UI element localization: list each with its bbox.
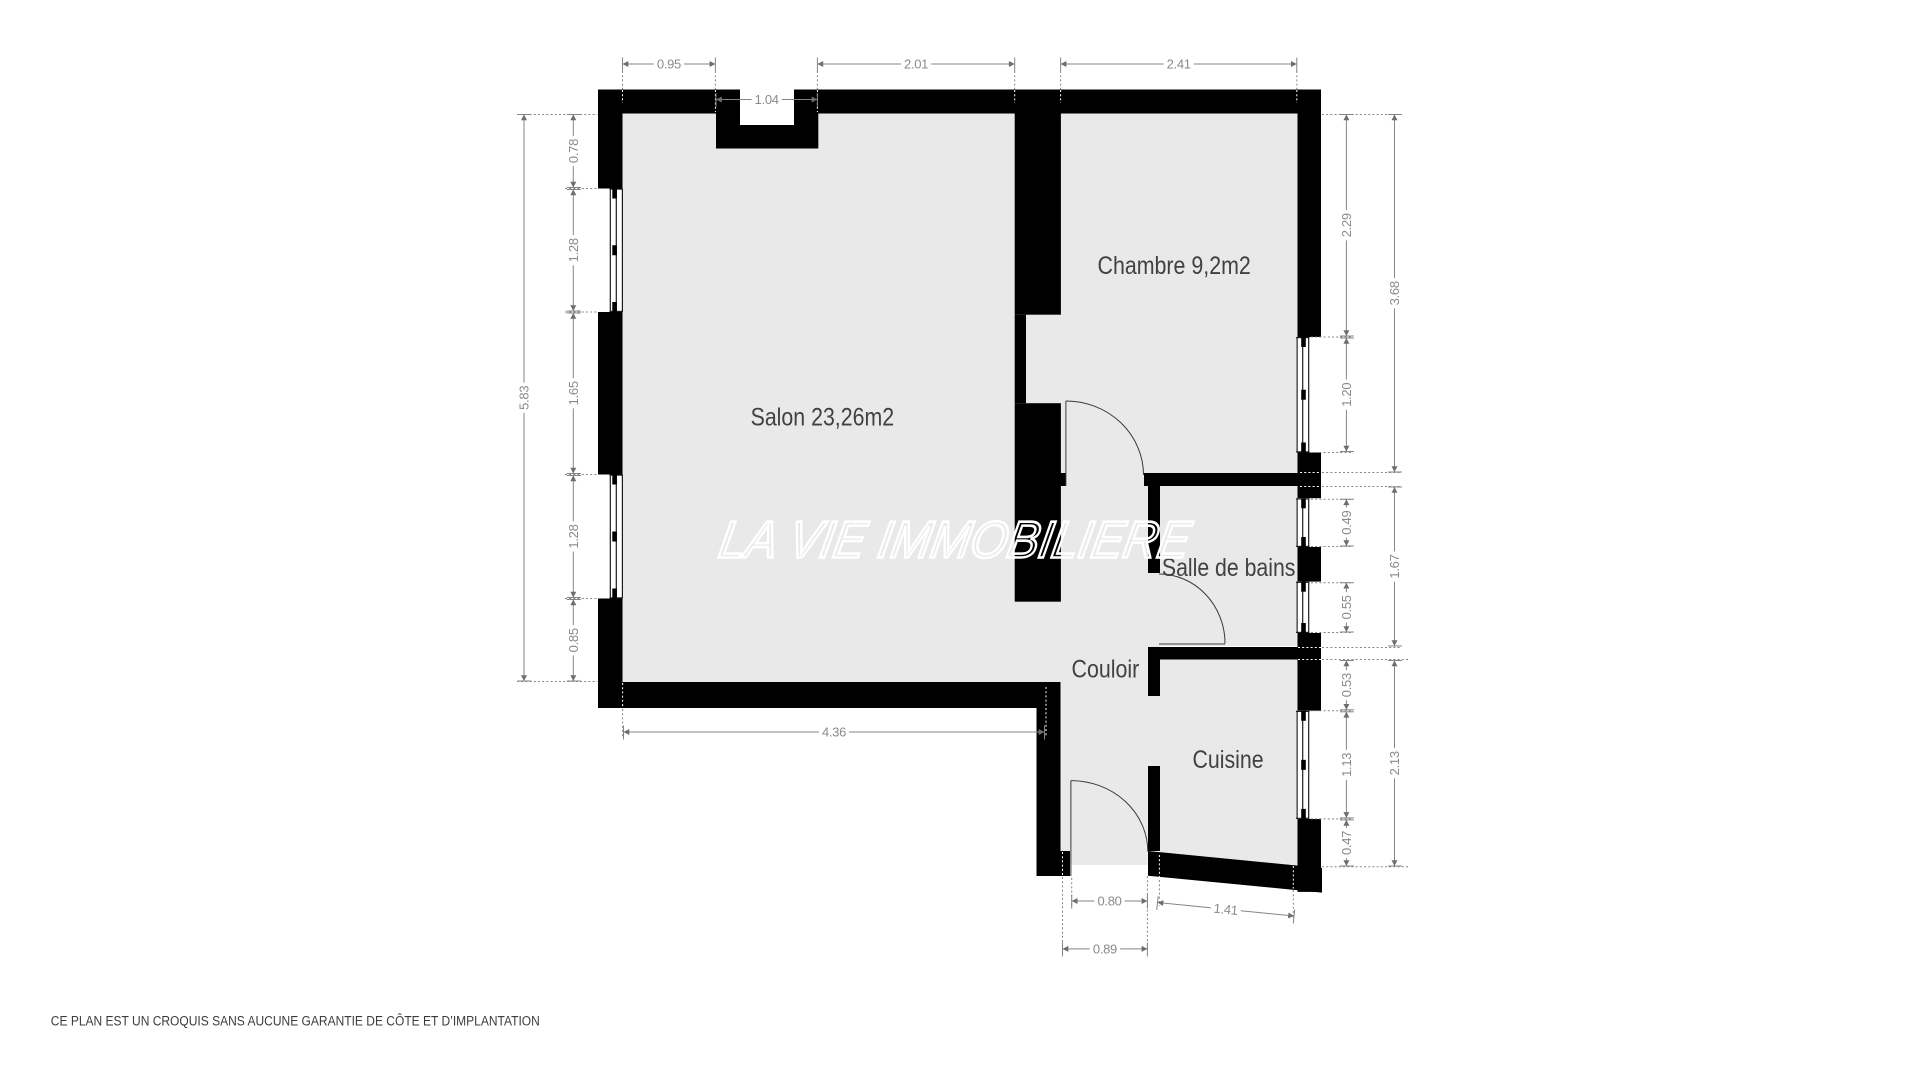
- svg-text:5.83: 5.83: [517, 386, 532, 410]
- svg-text:2.41: 2.41: [1167, 57, 1191, 72]
- svg-text:1.65: 1.65: [566, 381, 581, 405]
- svg-text:LA VIE IMMOBILIERE: LA VIE IMMOBILIERE: [715, 512, 1196, 570]
- svg-text:1.20: 1.20: [1339, 383, 1354, 407]
- svg-text:0.80: 0.80: [1097, 894, 1121, 909]
- svg-text:2.13: 2.13: [1387, 751, 1402, 775]
- svg-text:3.68: 3.68: [1387, 281, 1402, 305]
- svg-text:1.67: 1.67: [1387, 554, 1402, 578]
- svg-text:0.55: 0.55: [1339, 595, 1354, 619]
- svg-text:0.89: 0.89: [1093, 942, 1117, 957]
- svg-text:Couloir: Couloir: [1072, 655, 1140, 683]
- svg-text:2.01: 2.01: [904, 57, 928, 72]
- svg-text:2.29: 2.29: [1339, 213, 1354, 237]
- svg-text:1.28: 1.28: [566, 524, 581, 548]
- svg-text:4.36: 4.36: [822, 725, 846, 740]
- svg-text:0.95: 0.95: [657, 57, 681, 72]
- svg-text:0.49: 0.49: [1339, 511, 1354, 535]
- svg-text:1.13: 1.13: [1339, 753, 1354, 777]
- svg-text:0.78: 0.78: [566, 139, 581, 163]
- svg-text:0.47: 0.47: [1339, 831, 1354, 855]
- svg-text:1.04: 1.04: [755, 92, 779, 107]
- svg-text:Cuisine: Cuisine: [1193, 746, 1264, 774]
- svg-text:1.41: 1.41: [1213, 901, 1239, 918]
- svg-text:0.53: 0.53: [1339, 673, 1354, 697]
- svg-text:1.28: 1.28: [566, 238, 581, 262]
- svg-text:Chambre 9,2m2: Chambre 9,2m2: [1098, 252, 1251, 280]
- svg-text:Salon 23,26m2: Salon 23,26m2: [751, 404, 895, 432]
- svg-text:0.85: 0.85: [566, 628, 581, 652]
- svg-text:CE PLAN EST UN CROQUIS SANS AU: CE PLAN EST UN CROQUIS SANS AUCUNE GARAN…: [51, 1014, 540, 1029]
